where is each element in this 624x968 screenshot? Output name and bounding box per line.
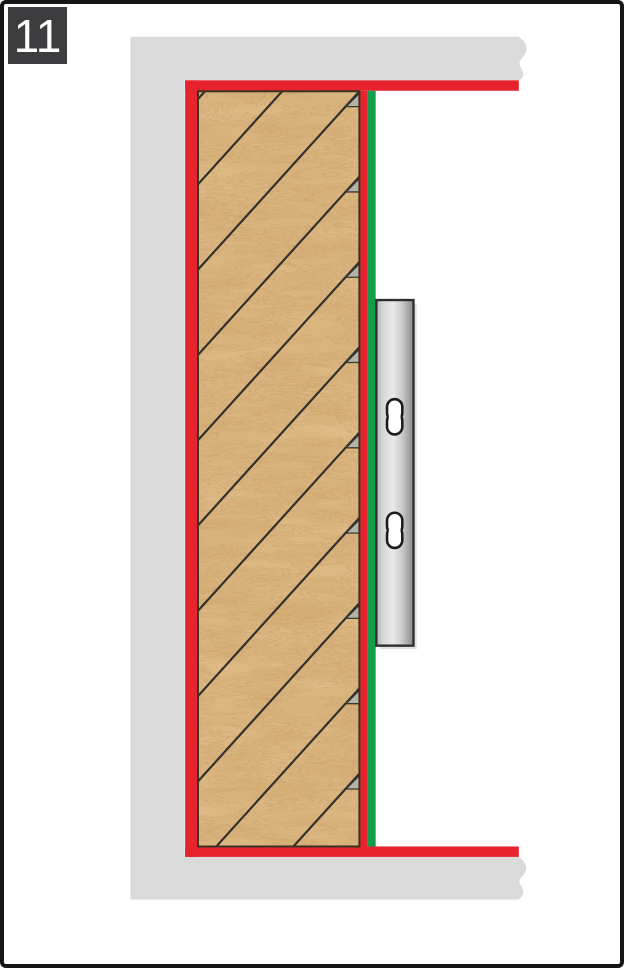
mounting-rail xyxy=(376,300,416,649)
rail-slot-top xyxy=(387,399,402,434)
rail-slot-bottom xyxy=(387,513,402,548)
red-batten-right xyxy=(359,91,367,847)
assembly-diagram xyxy=(4,4,620,964)
green-strip xyxy=(367,91,376,847)
step-number-badge: 11 xyxy=(8,7,67,64)
red-batten-top xyxy=(185,80,519,90)
red-batten-left xyxy=(185,80,198,857)
wood-panel xyxy=(197,91,359,846)
rail-body xyxy=(376,300,413,646)
red-batten-bottom xyxy=(185,846,519,856)
diagram-canvas: 11 xyxy=(0,0,624,968)
step-number: 11 xyxy=(14,13,62,59)
